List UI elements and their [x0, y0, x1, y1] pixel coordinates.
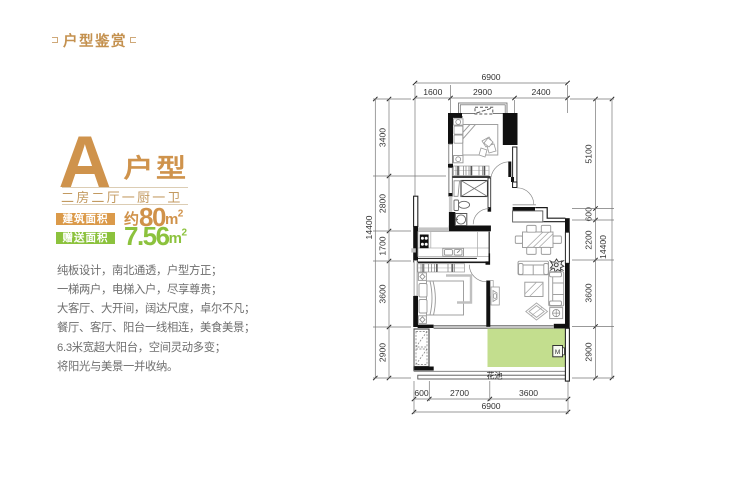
- svg-text:5100: 5100: [584, 144, 594, 163]
- svg-text:1700: 1700: [378, 236, 388, 255]
- svg-text:2400: 2400: [531, 87, 550, 97]
- svg-text:6900: 6900: [481, 401, 500, 411]
- svg-text:3600: 3600: [519, 388, 538, 398]
- svg-text:14400: 14400: [598, 235, 608, 259]
- svg-text:3600: 3600: [378, 284, 388, 303]
- svg-text:600: 600: [414, 388, 429, 398]
- svg-text:花池: 花池: [487, 371, 503, 381]
- svg-text:2200: 2200: [584, 230, 594, 249]
- svg-text:3400: 3400: [378, 128, 388, 147]
- svg-text:2900: 2900: [584, 342, 594, 361]
- svg-text:2800: 2800: [378, 194, 388, 213]
- svg-text:3600: 3600: [584, 283, 594, 302]
- svg-text:6900: 6900: [481, 72, 500, 82]
- svg-text:M: M: [555, 349, 560, 356]
- svg-text:2900: 2900: [378, 343, 388, 362]
- svg-text:2700: 2700: [450, 388, 469, 398]
- svg-text:14400: 14400: [364, 215, 374, 239]
- svg-text:2900: 2900: [473, 87, 492, 97]
- svg-text:600: 600: [584, 207, 594, 222]
- svg-text:1600: 1600: [423, 87, 442, 97]
